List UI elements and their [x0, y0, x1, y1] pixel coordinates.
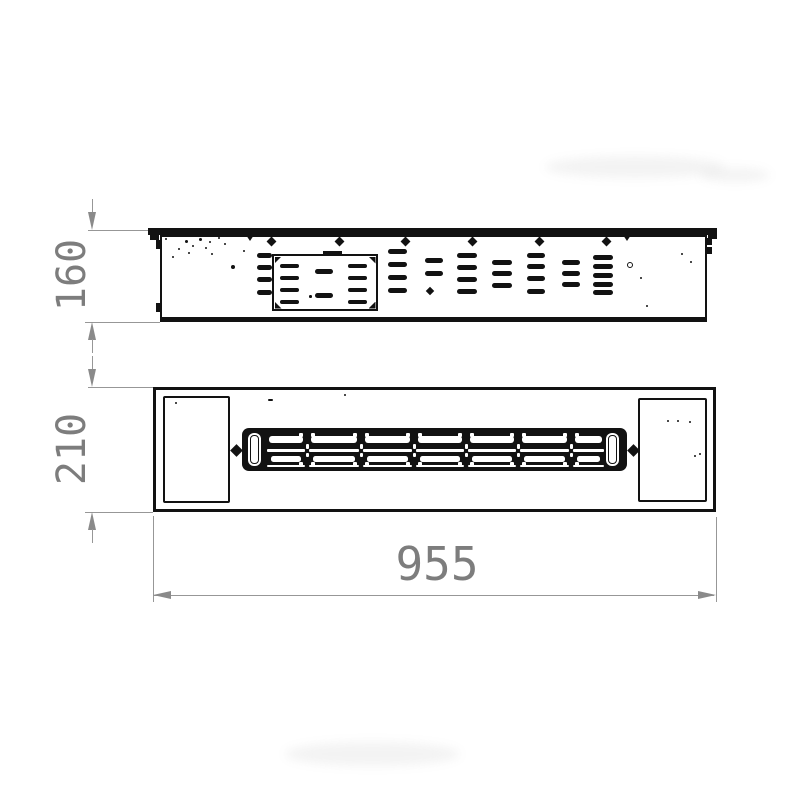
- burner-tick: [306, 453, 309, 457]
- burner-bottom-slot: [472, 456, 512, 462]
- burner-bottom-line: [309, 465, 359, 468]
- burner-notch: [563, 462, 567, 466]
- burner-notch: [458, 433, 462, 437]
- burner-tick: [306, 444, 309, 449]
- burner-notch: [299, 462, 303, 466]
- burner-mid-line: [309, 449, 359, 453]
- burner-notch: [365, 462, 369, 466]
- speckle: [677, 420, 679, 422]
- dimension-stem: [92, 339, 93, 353]
- burner-top-slot: [470, 436, 514, 444]
- burner-notch: [575, 433, 579, 437]
- burner-slots: [0, 0, 800, 800]
- burner-notch: [418, 433, 422, 437]
- burner-mid-line: [416, 449, 464, 453]
- burner-bottom-line: [363, 465, 412, 468]
- extension-line: [716, 517, 717, 602]
- burner-notch: [353, 462, 357, 466]
- burner-tick: [465, 453, 468, 457]
- burner-notch: [510, 433, 514, 437]
- dimension-arrow-left: [153, 591, 171, 599]
- burner-bottom-line: [416, 465, 464, 468]
- burner-top-slot: [575, 436, 602, 444]
- extension-line: [88, 230, 148, 231]
- dimension-arrow-down: [88, 369, 96, 387]
- burner-tick: [570, 453, 573, 457]
- dimension-stem: [92, 356, 93, 370]
- burner-bottom-slot: [313, 456, 355, 462]
- burner-tick: [570, 444, 573, 449]
- speckle: [699, 453, 701, 455]
- dimension-stem: [92, 199, 93, 213]
- burner-bottom-slot: [577, 456, 600, 462]
- burner-notch: [510, 462, 514, 466]
- burner-notch: [299, 433, 303, 437]
- burner-top-slot: [522, 436, 567, 444]
- burner-notch: [353, 433, 357, 437]
- burner-bottom-slot: [367, 456, 408, 462]
- burner-bottom-line: [468, 465, 516, 468]
- burner-notch: [418, 462, 422, 466]
- dimension-arrow-right: [698, 591, 716, 599]
- burner-mid-line: [520, 449, 569, 453]
- speckle: [175, 402, 177, 404]
- burner-notch: [311, 433, 315, 437]
- burner-tick: [413, 453, 416, 457]
- burner-mid-line: [267, 449, 305, 453]
- burner-bottom-slot: [420, 456, 460, 462]
- burner-mid-line: [573, 449, 604, 453]
- burner-notch: [406, 433, 410, 437]
- extension-line: [85, 322, 160, 323]
- extension-line: [88, 387, 153, 388]
- burner-top-slot: [269, 436, 303, 444]
- burner-bottom-line: [520, 465, 569, 468]
- technical-drawing-canvas: 160 210 955: [0, 0, 800, 800]
- burner-notch: [563, 433, 567, 437]
- burner-notch: [470, 433, 474, 437]
- burner-notch: [522, 462, 526, 466]
- burner-notch: [575, 462, 579, 466]
- tick-mark: [268, 399, 273, 401]
- burner-mid-line: [363, 449, 412, 453]
- burner-top-slot: [418, 436, 462, 444]
- burner-notch: [311, 462, 315, 466]
- speckle: [689, 421, 691, 423]
- burner-tick: [360, 444, 363, 449]
- dimension-label-height-side: 160: [50, 215, 94, 335]
- dimension-arrow-up: [88, 512, 96, 530]
- burner-notch: [365, 433, 369, 437]
- burner-notch: [406, 462, 410, 466]
- burner-top-slot: [365, 436, 410, 444]
- speckle: [667, 420, 669, 422]
- burner-notch: [458, 462, 462, 466]
- burner-tick: [517, 453, 520, 457]
- dimension-line: [154, 595, 714, 596]
- dimension-label-width: 955: [357, 541, 517, 587]
- burner-bottom-slot: [524, 456, 565, 462]
- burner-tick: [360, 453, 363, 457]
- burner-notch: [470, 462, 474, 466]
- extension-line: [153, 516, 154, 602]
- burner-notch: [522, 433, 526, 437]
- speckle: [694, 455, 696, 457]
- burner-tick: [517, 444, 520, 449]
- burner-mid-line: [468, 449, 516, 453]
- dimension-stem: [92, 529, 93, 543]
- dimension-label-height-plan: 210: [50, 389, 94, 509]
- burner-top-slot: [311, 436, 357, 444]
- speckle: [344, 394, 346, 396]
- burner-tick: [413, 444, 416, 449]
- burner-tick: [465, 444, 468, 449]
- burner-bottom-slot: [271, 456, 301, 462]
